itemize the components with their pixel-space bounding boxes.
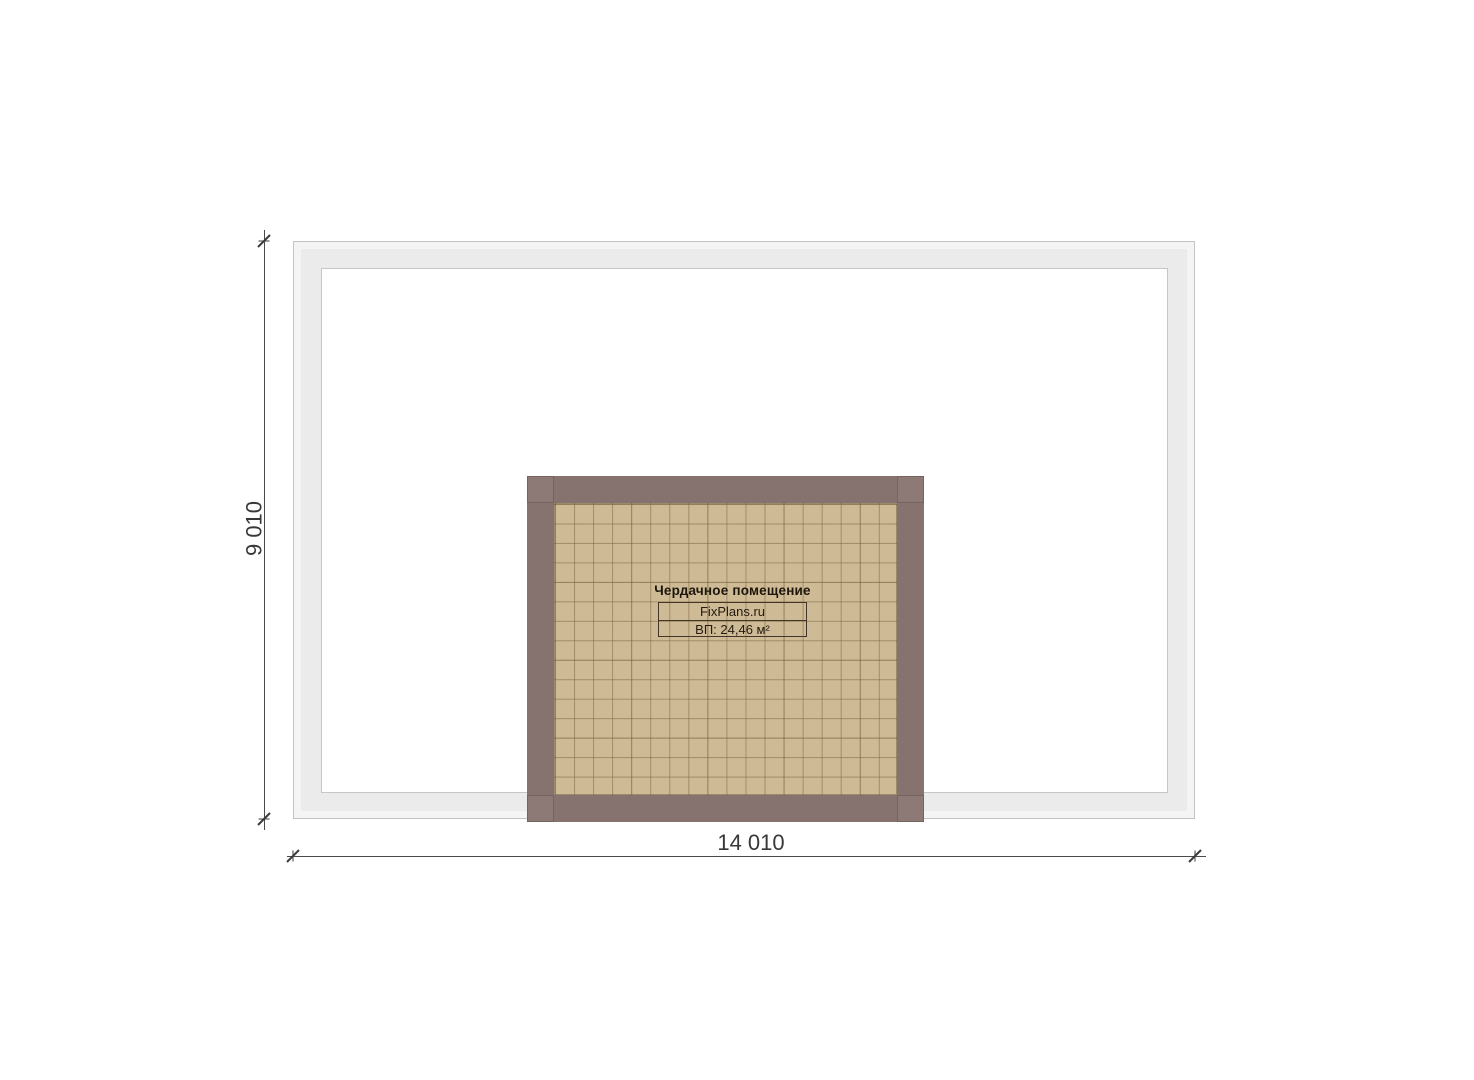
room-title: Чердачное помещение [527,583,924,598]
room-info-box: FixPlans.ru ВП: 24,46 м² [658,602,807,637]
attic-room: Чердачное помещение FixPlans.ru ВП: 24,4… [527,476,924,822]
room-area-label: ВП: 24,46 м² [659,621,806,638]
dimension-label-height: 9 010 [243,469,266,589]
brand-watermark: FixPlans.ru [659,603,806,621]
dimension-tick-cross [259,241,270,242]
corner-column-top-left [527,476,554,503]
dimension-label-width: 14 010 [691,831,811,854]
corner-column-bottom-right [897,795,924,822]
corner-column-top-right [897,476,924,503]
corner-column-bottom-left [527,795,554,822]
dimension-tick-cross [293,851,294,862]
dimension-tick-cross [1195,851,1196,862]
dimension-tick-cross [259,819,270,820]
dimension-line-horizontal [287,856,1206,857]
attic-floor-grid [554,503,897,795]
floor-plan-canvas: Чердачное помещение FixPlans.ru ВП: 24,4… [0,0,1474,1080]
